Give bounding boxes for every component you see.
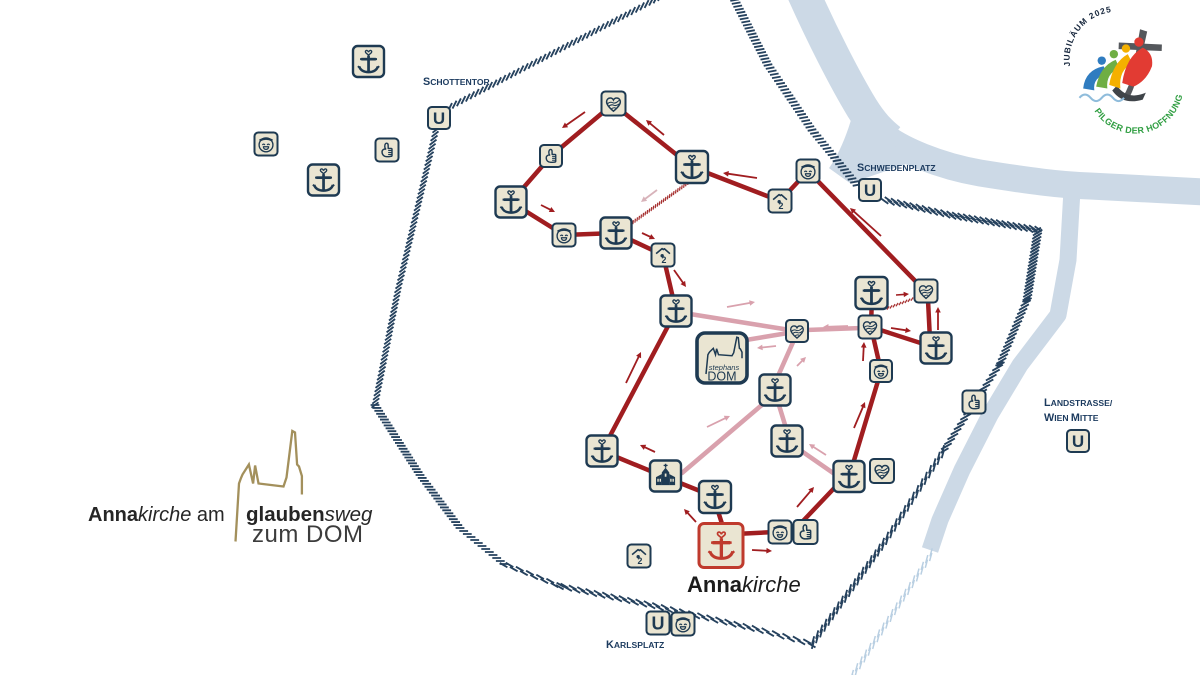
svg-text:U: U: [433, 109, 445, 128]
svg-text:Annakirche: Annakirche: [687, 572, 801, 597]
svg-text:SCHOTTENTOR: SCHOTTENTOR: [423, 76, 491, 88]
svg-text:SCHWEDENPLATZ: SCHWEDENPLATZ: [857, 162, 936, 174]
svg-text:DOM: DOM: [707, 370, 736, 384]
svg-text:U: U: [652, 614, 665, 634]
svg-text:U: U: [864, 181, 876, 200]
svg-text:KARLSPLATZ: KARLSPLATZ: [606, 639, 664, 651]
svg-text:zum DOM: zum DOM: [252, 521, 364, 548]
svg-text:LANDSTRASSE/: LANDSTRASSE/: [1044, 397, 1113, 409]
svg-text:WIEN MITTE: WIEN MITTE: [1044, 412, 1099, 424]
svg-text:Annakirche am: Annakirche am: [88, 504, 225, 526]
svg-text:U: U: [1072, 432, 1084, 451]
